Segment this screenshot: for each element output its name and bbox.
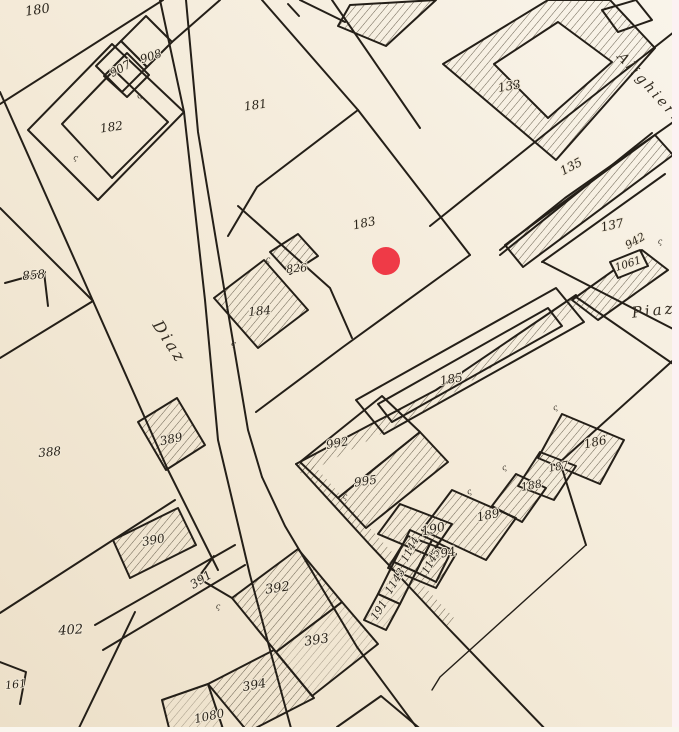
photo-edge-bottom bbox=[0, 727, 679, 732]
survey-tick-mark: ς bbox=[343, 492, 348, 501]
parcel-label-858: 858 bbox=[22, 267, 46, 283]
parcel-label-184: 184 bbox=[248, 303, 272, 319]
parcel-label-388: 388 bbox=[38, 444, 62, 460]
cadastral-map: 1809079081821811331351379421061183826184… bbox=[0, 0, 679, 732]
parcel-label-826: 826 bbox=[286, 261, 308, 276]
survey-tick-mark: ς bbox=[216, 602, 221, 611]
location-marker bbox=[372, 247, 400, 275]
survey-tick-mark: ς bbox=[266, 255, 271, 264]
location-marker-layer bbox=[372, 247, 400, 275]
parcel-label-161: 161 bbox=[5, 677, 27, 692]
parcel-label-402: 402 bbox=[57, 622, 84, 639]
photo-edge-right bbox=[672, 0, 679, 732]
survey-tick-mark: ς bbox=[658, 237, 663, 246]
map-canvas: 1809079081821811331351379421061183826184… bbox=[0, 0, 679, 732]
